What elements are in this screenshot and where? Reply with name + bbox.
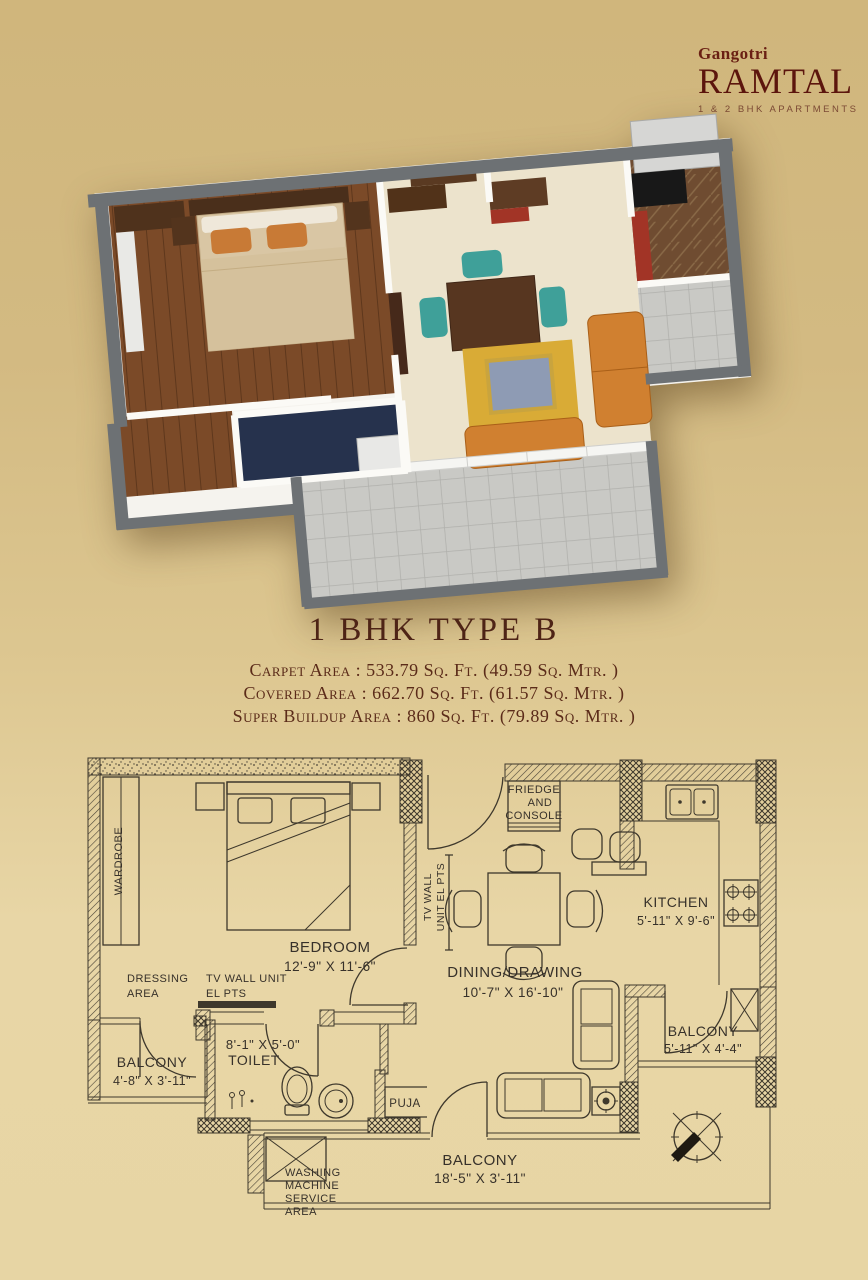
- dining-label: DINING/DRAWING: [447, 964, 583, 981]
- dining-chair-3d: [461, 249, 503, 278]
- stove-3d: [631, 169, 688, 208]
- super-buildup-area-line: Super Buildup Area : 860 Sq. Ft. (79.89 …: [0, 705, 868, 728]
- svg-text:SERVICE: SERVICE: [285, 1193, 337, 1205]
- unit-info: 1 BHK TYPE B Carpet Area : 533.79 Sq. Ft…: [0, 612, 868, 728]
- floor-plan-drawing: WARDROBE BEDROOM 12'-9" X 11'-6" DRESSIN…: [0, 745, 868, 1235]
- apartment-3d: [85, 113, 769, 620]
- fridge-console-label: FRIEDGE: [508, 784, 560, 796]
- dressing-floor-3d: [114, 407, 239, 497]
- balcony-right-label: BALCONY: [668, 1023, 739, 1039]
- balcony-bottom-dims: 18'-5" X 3'-11": [434, 1171, 526, 1186]
- dining-dims: 10'-7" X 16'-10": [463, 985, 564, 1000]
- dining-table-3d: [447, 276, 541, 351]
- svg-text:CONSOLE: CONSOLE: [505, 810, 562, 822]
- washing-area-label: WASHING: [285, 1167, 341, 1179]
- console-3d: [488, 177, 548, 210]
- pillow-3d: [210, 227, 252, 254]
- covered-area-line: Covered Area : 662.70 Sq. Ft. (61.57 Sq.…: [0, 682, 868, 705]
- toilet-dims: 8'-1" X 5'-0": [226, 1037, 300, 1052]
- dining-chair-3d: [419, 296, 448, 338]
- svg-text:EL PTS: EL PTS: [206, 988, 247, 1000]
- balcony-right-dims: 5'-11" X 4'-4": [664, 1042, 742, 1056]
- entry-closet-3d: [387, 184, 447, 213]
- balcony-bottom-label: BALCONY: [442, 1152, 517, 1169]
- compass-rose: [671, 1111, 723, 1163]
- side-table-3d: [171, 216, 197, 246]
- kitchen-fixtures: [642, 785, 758, 985]
- puja-label: PUJA: [389, 1098, 420, 1110]
- coffee-table-3d: [487, 355, 555, 412]
- bedroom-label: BEDROOM: [289, 939, 370, 956]
- brochure-page: Gangotri RAMTAL 1 & 2 BHK APARTMENTS: [0, 0, 868, 1280]
- unit-title: 1 BHK TYPE B: [0, 612, 868, 649]
- svg-text:MACHINE: MACHINE: [285, 1180, 339, 1192]
- svg-text:AREA: AREA: [127, 988, 159, 1000]
- svg-text:AREA: AREA: [285, 1206, 317, 1218]
- doors: [140, 775, 727, 1137]
- tv-wall-vertical-label: TV WALL: [422, 873, 434, 921]
- kitchen-label: KITCHEN: [644, 894, 709, 910]
- pillow-3d: [266, 222, 308, 249]
- tv-wall-unit-label: TV WALL UNIT: [206, 973, 287, 985]
- toilet-fixtures: [230, 1067, 354, 1118]
- toilet-label: TOILET: [228, 1052, 280, 1068]
- bedroom-dims: 12'-9" X 11'-6": [284, 959, 376, 974]
- kitchen-dims: 5'-11" X 9'-6": [637, 914, 715, 928]
- dining-chair-3d: [538, 286, 567, 328]
- right-balcony-3d: [637, 276, 744, 381]
- isometric-floorplan-render: [0, 0, 868, 620]
- balcony-left-label: BALCONY: [117, 1054, 188, 1070]
- shower-tray-3d: [357, 435, 406, 473]
- dressing-label: DRESSING: [127, 973, 188, 985]
- svg-text:AND: AND: [528, 797, 553, 809]
- svg-text:UNIT EL PTS: UNIT EL PTS: [435, 863, 447, 932]
- carpet-area-line: Carpet Area : 533.79 Sq. Ft. (49.59 Sq. …: [0, 659, 868, 682]
- side-table-3d: [344, 201, 370, 231]
- wardrobe-label: WARDROBE: [113, 827, 125, 895]
- balcony-left-dims: 4'-8" X 3'-11": [113, 1074, 191, 1088]
